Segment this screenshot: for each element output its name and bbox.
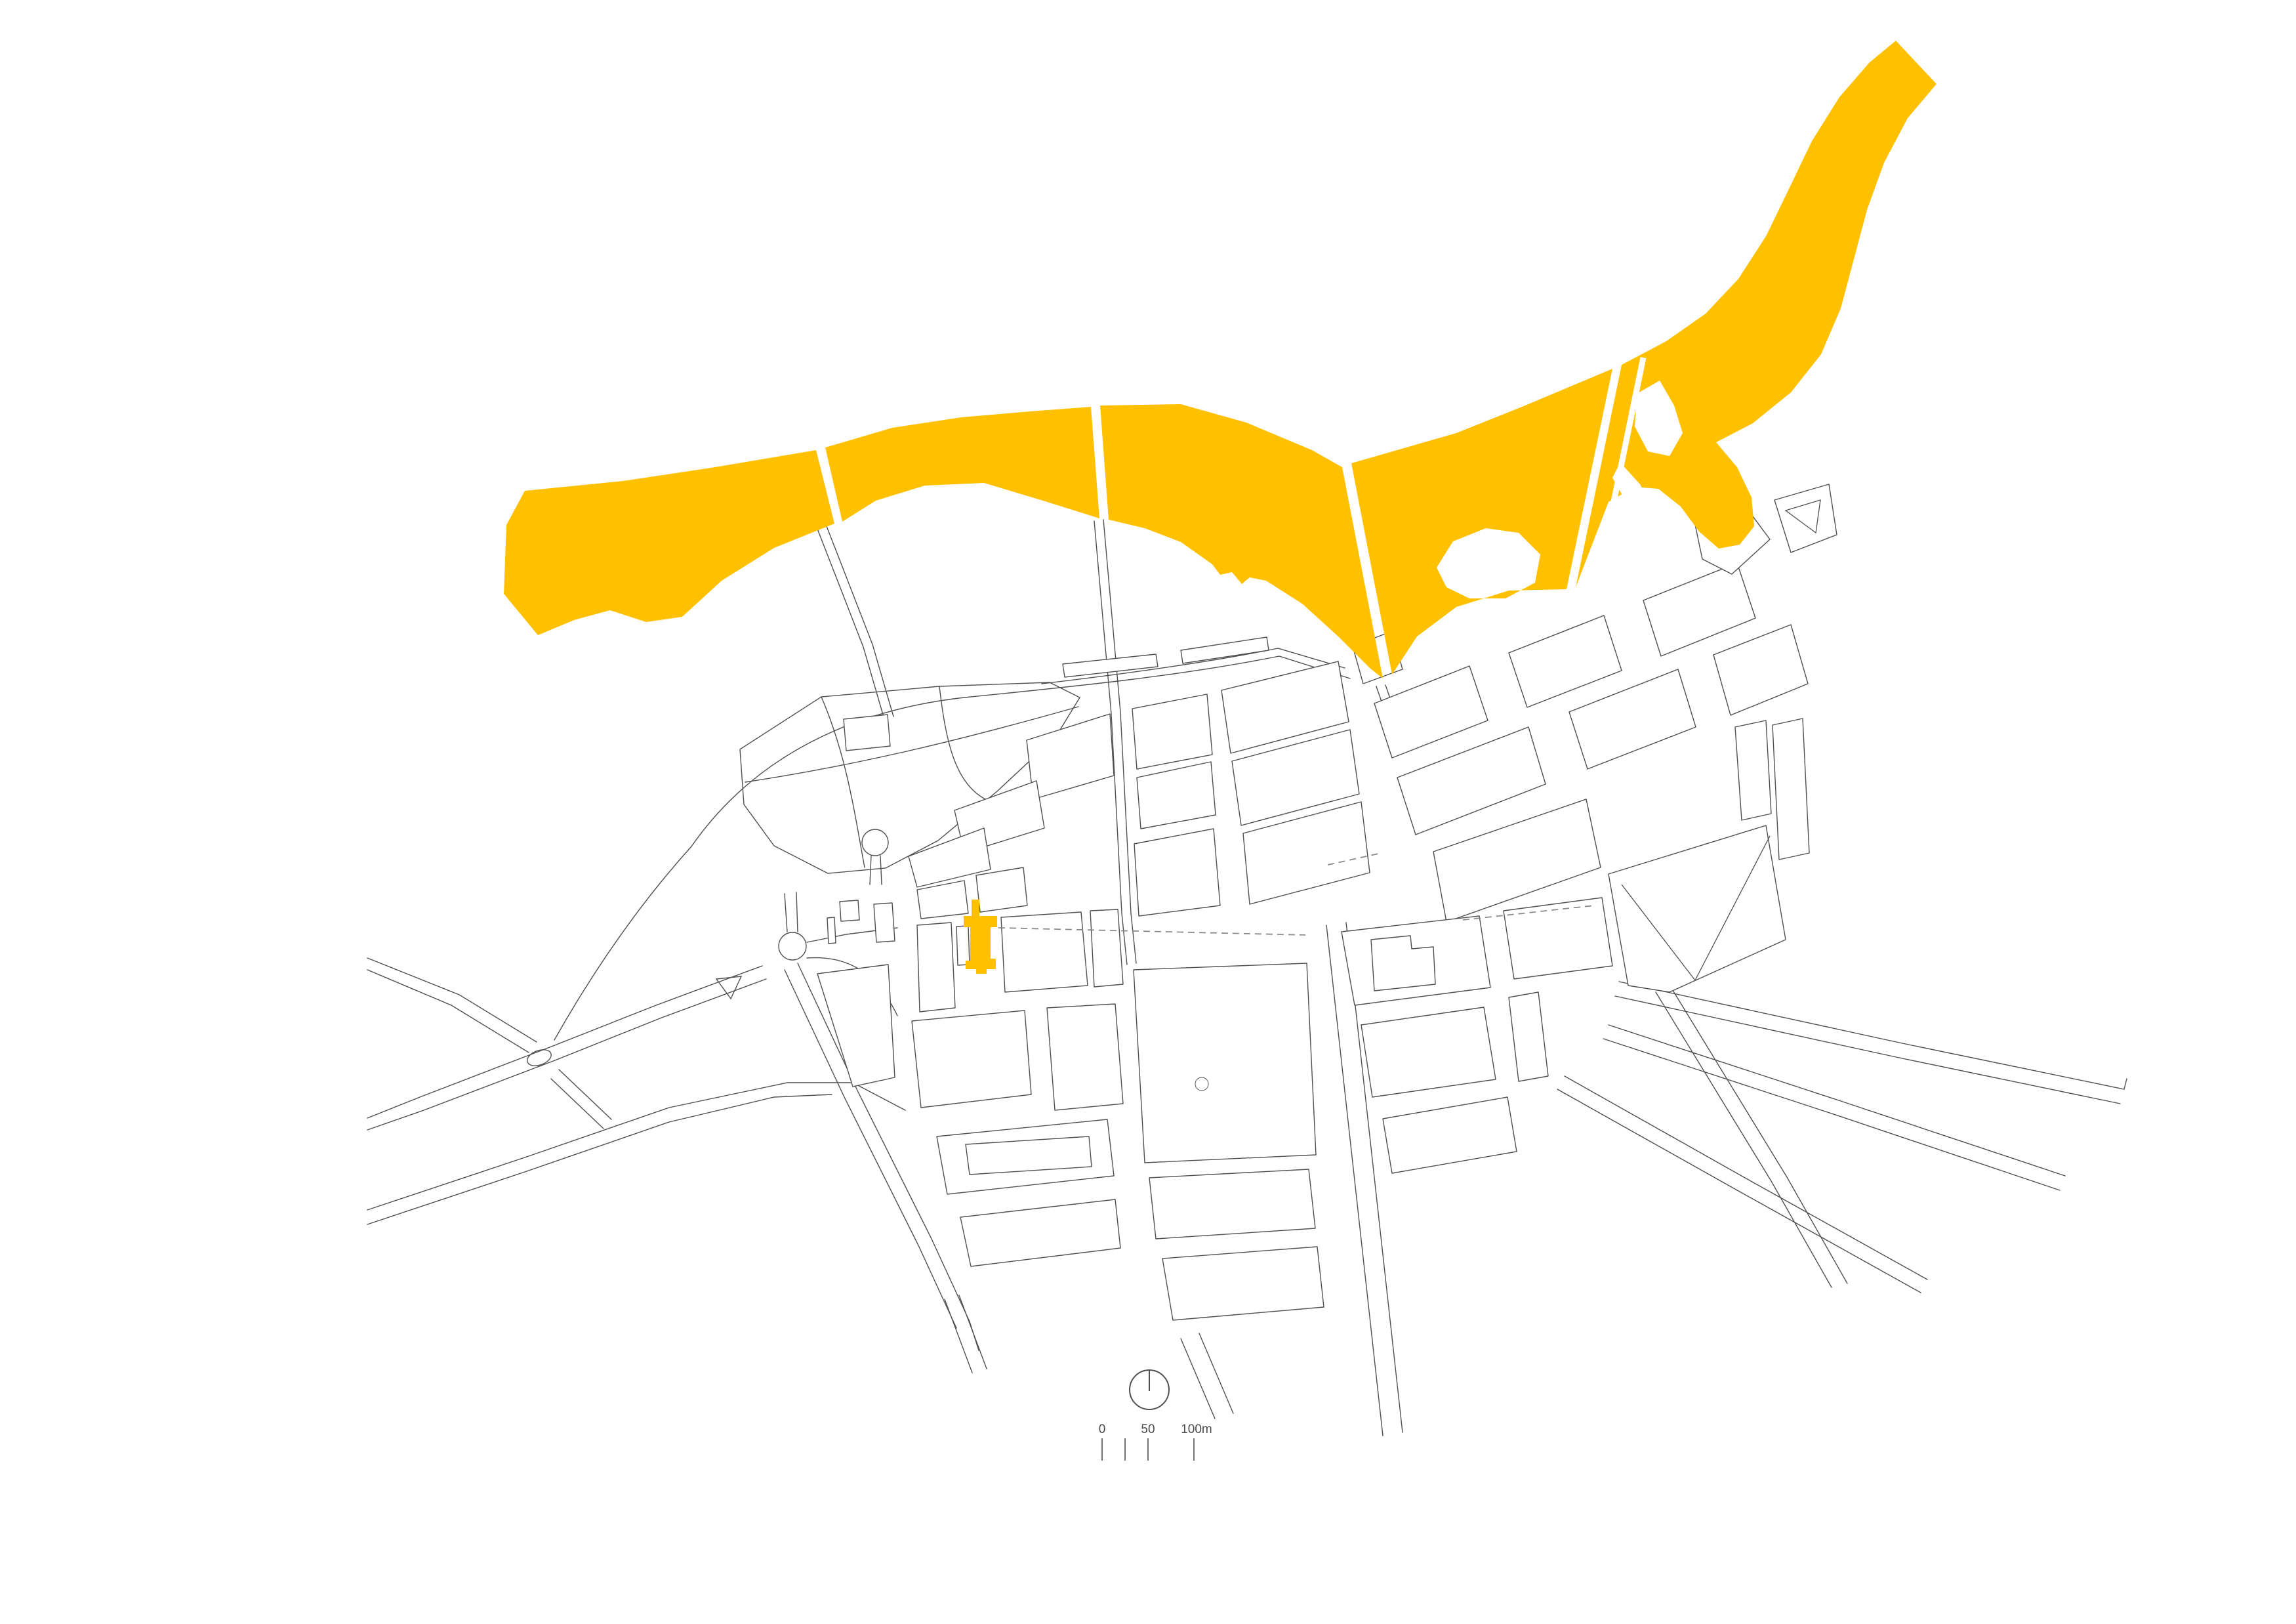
block: [1361, 1007, 1496, 1097]
block: [1090, 909, 1123, 987]
block: [1047, 1004, 1123, 1110]
block: [1063, 654, 1158, 677]
block: [1132, 694, 1212, 769]
block: [874, 903, 895, 942]
south-street-tip: [1181, 1333, 1233, 1419]
traffic-oval: [525, 1047, 553, 1069]
sw-street-nw: [367, 958, 537, 1052]
park-outline: [740, 682, 1080, 873]
square-block: [1134, 963, 1316, 1163]
block: [912, 1010, 1031, 1108]
block: [817, 965, 895, 1087]
block: [956, 926, 970, 965]
block: [1162, 1247, 1324, 1320]
block: [1383, 1097, 1517, 1173]
site-plan-map: 0 50 100m: [0, 0, 2296, 1624]
scale-label-0: 0: [1099, 1423, 1106, 1436]
block: [1773, 718, 1809, 860]
scale-label-50: 50: [1141, 1423, 1155, 1436]
river-west-segment: [504, 450, 834, 635]
block: [917, 923, 955, 1012]
roundabout-north-stub: [785, 892, 798, 932]
block: [1181, 637, 1269, 663]
block: [1134, 829, 1220, 916]
block: [1509, 992, 1548, 1081]
se-fan-street-3: [1557, 1076, 1927, 1293]
road-to-southwest: [554, 846, 691, 1040]
block: [827, 917, 836, 944]
river-east-segment: [1100, 404, 1383, 678]
block-with-triangle: [1774, 484, 1837, 552]
block: [840, 900, 859, 921]
se-cross-street: [1656, 988, 1847, 1287]
block: [1713, 625, 1808, 715]
block-with-court: [1609, 825, 1786, 992]
triangle-island: [716, 976, 741, 999]
scale-label-100m: 100m: [1181, 1423, 1212, 1436]
block: [1735, 720, 1771, 820]
roundabout: [779, 932, 806, 960]
north-arrow-icon: [1130, 1370, 1169, 1409]
block: [1149, 1169, 1315, 1239]
sw-street-se: [551, 1070, 611, 1129]
river-upstream-channel: [1576, 41, 1937, 587]
sw-avenue-1: [367, 966, 766, 1130]
park-path: [939, 686, 988, 801]
page: { "page": { "background_color": "#ffffff…: [0, 0, 2296, 1624]
bridge1-road: [817, 526, 893, 719]
block: [1509, 615, 1622, 707]
circular-plaza-stem: [870, 856, 882, 885]
block-east-of-site: [1001, 912, 1088, 992]
scale-bar: 0 50 100m: [1099, 1423, 1212, 1461]
park-building: [844, 715, 890, 751]
block: [917, 881, 968, 919]
block: [976, 867, 1027, 912]
se-fan-street-1: [1615, 982, 2127, 1104]
block: [1374, 666, 1488, 758]
block: [1027, 714, 1114, 799]
south-street-tip: [945, 1295, 987, 1373]
sw-avenue-2: [367, 1083, 905, 1224]
block: [1569, 669, 1696, 769]
block: [1137, 762, 1216, 829]
se-fan-street-2: [1603, 1025, 2065, 1190]
river-mid-segment: [825, 407, 1099, 522]
block: [1643, 563, 1755, 656]
block: [960, 1199, 1120, 1266]
circular-plaza: [862, 829, 888, 856]
